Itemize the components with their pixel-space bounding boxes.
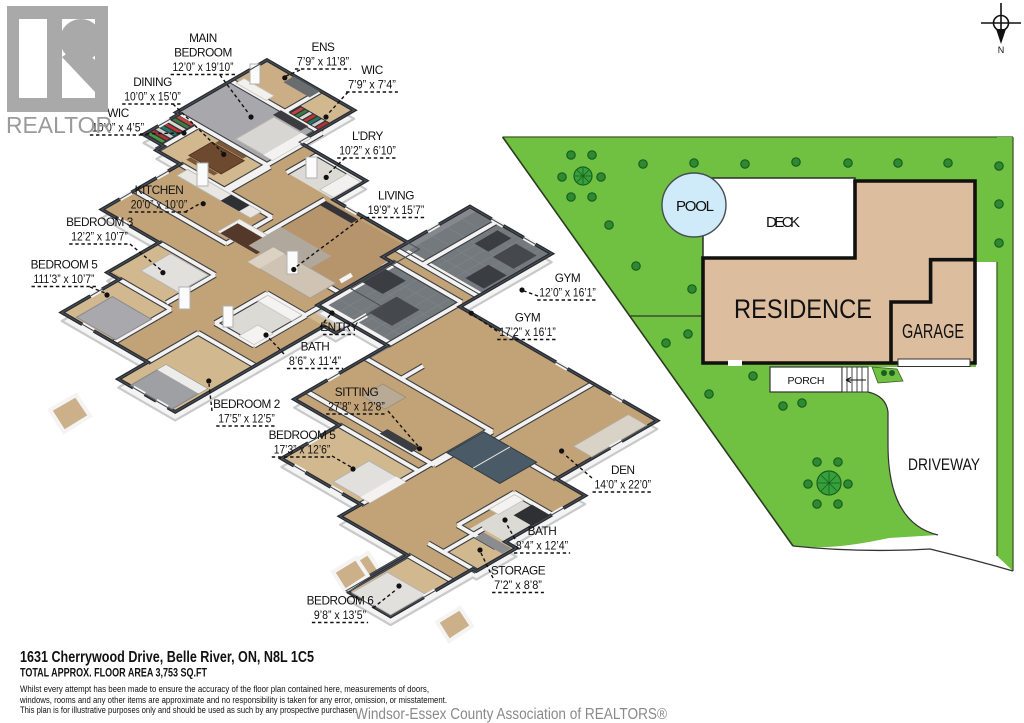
svg-text:17’3” x 12’6”: 17’3” x 12’6” xyxy=(274,443,331,457)
svg-text:N: N xyxy=(998,45,1005,55)
svg-text:GYM: GYM xyxy=(515,311,541,325)
svg-text:BEDROOM 5: BEDROOM 5 xyxy=(31,258,99,272)
svg-text:L’DRY: L’DRY xyxy=(352,129,384,143)
svg-text:17’2” x 16’1”: 17’2” x 16’1” xyxy=(499,325,556,339)
svg-text:8’6” x 11’4”: 8’6” x 11’4” xyxy=(289,354,341,368)
svg-text:1631 Cherrywood Drive, Belle R: 1631 Cherrywood Drive, Belle River, ON, … xyxy=(20,649,314,666)
svg-text:POOL: POOL xyxy=(676,198,714,215)
svg-text:DINING: DINING xyxy=(133,75,172,89)
svg-text:GARAGE: GARAGE xyxy=(902,321,964,343)
svg-text:LIVING: LIVING xyxy=(378,189,414,203)
svg-text:BEDROOM 2: BEDROOM 2 xyxy=(213,397,280,411)
svg-text:BATH: BATH xyxy=(301,340,330,354)
svg-text:GYM: GYM xyxy=(555,271,581,285)
svg-text:This plan is for illustrative: This plan is for illustrative purposes o… xyxy=(20,705,357,715)
svg-text:BEDROOM: BEDROOM xyxy=(174,46,232,60)
svg-text:windows, rooms and any other i: windows, rooms and any other items are a… xyxy=(19,695,447,705)
svg-text:BEDROOM 6: BEDROOM 6 xyxy=(307,594,375,608)
svg-text:111’3” x 10’7”: 111’3” x 10’7” xyxy=(34,272,95,286)
svg-text:20’0” x 10’0”: 20’0” x 10’0” xyxy=(131,198,188,212)
svg-text:PORCH: PORCH xyxy=(788,375,825,387)
svg-text:12’2” x 10’7”: 12’2” x 10’7” xyxy=(71,230,128,244)
svg-text:14’0” x 22’0”: 14’0” x 22’0” xyxy=(595,478,652,492)
svg-text:ENS: ENS xyxy=(312,40,335,54)
svg-text:SITTING: SITTING xyxy=(335,385,379,399)
svg-text:STORAGE: STORAGE xyxy=(491,564,546,578)
svg-text:12’0” x 19’10”: 12’0” x 19’10” xyxy=(173,60,234,74)
svg-text:7’9” x 11’8”: 7’9” x 11’8” xyxy=(297,55,349,69)
svg-text:DECK: DECK xyxy=(766,214,800,231)
svg-text:10’2” x 6’10”: 10’2” x 6’10” xyxy=(339,144,396,158)
svg-text:REALTOR: REALTOR xyxy=(6,112,112,138)
svg-text:KITCHEN: KITCHEN xyxy=(135,183,184,197)
svg-text:Whilst every attempt has been: Whilst every attempt has been made to en… xyxy=(20,684,429,694)
svg-text:BEDROOM 3: BEDROOM 3 xyxy=(66,215,134,229)
svg-text:8’4” x 12’4”: 8’4” x 12’4” xyxy=(516,539,568,553)
svg-text:ENTRY: ENTRY xyxy=(320,320,358,334)
svg-text:MAIN: MAIN xyxy=(189,31,217,45)
svg-text:TOTAL APPROX. FLOOR AREA 3,753: TOTAL APPROX. FLOOR AREA 3,753 SQ.FT xyxy=(20,668,207,680)
svg-text:BEDROOM 5: BEDROOM 5 xyxy=(269,428,337,442)
svg-text:19’9” x 15’7”: 19’9” x 15’7” xyxy=(368,203,425,217)
svg-text:BATH: BATH xyxy=(528,524,557,538)
svg-text:12’0” x 16’1”: 12’0” x 16’1” xyxy=(539,286,596,300)
svg-text:DEN: DEN xyxy=(611,463,635,477)
svg-text:27’8” x 12’8”: 27’8” x 12’8” xyxy=(328,400,385,414)
svg-text:9’8” x 13’5”: 9’8” x 13’5” xyxy=(314,608,366,622)
svg-text:DRIVEWAY: DRIVEWAY xyxy=(908,455,980,474)
svg-text:7’2” x 8’8”: 7’2” x 8’8” xyxy=(494,578,542,592)
svg-text:17’5” x 12’5”: 17’5” x 12’5” xyxy=(218,412,275,426)
svg-text:7’9” x 7’4”: 7’9” x 7’4” xyxy=(348,78,396,92)
svg-text:RESIDENCE: RESIDENCE xyxy=(734,294,872,324)
svg-text:WIC: WIC xyxy=(361,63,384,77)
svg-text:Windsor-Essex County Associati: Windsor-Essex County Association of REAL… xyxy=(355,706,667,723)
svg-text:10’0” x 15’0”: 10’0” x 15’0” xyxy=(124,90,181,104)
